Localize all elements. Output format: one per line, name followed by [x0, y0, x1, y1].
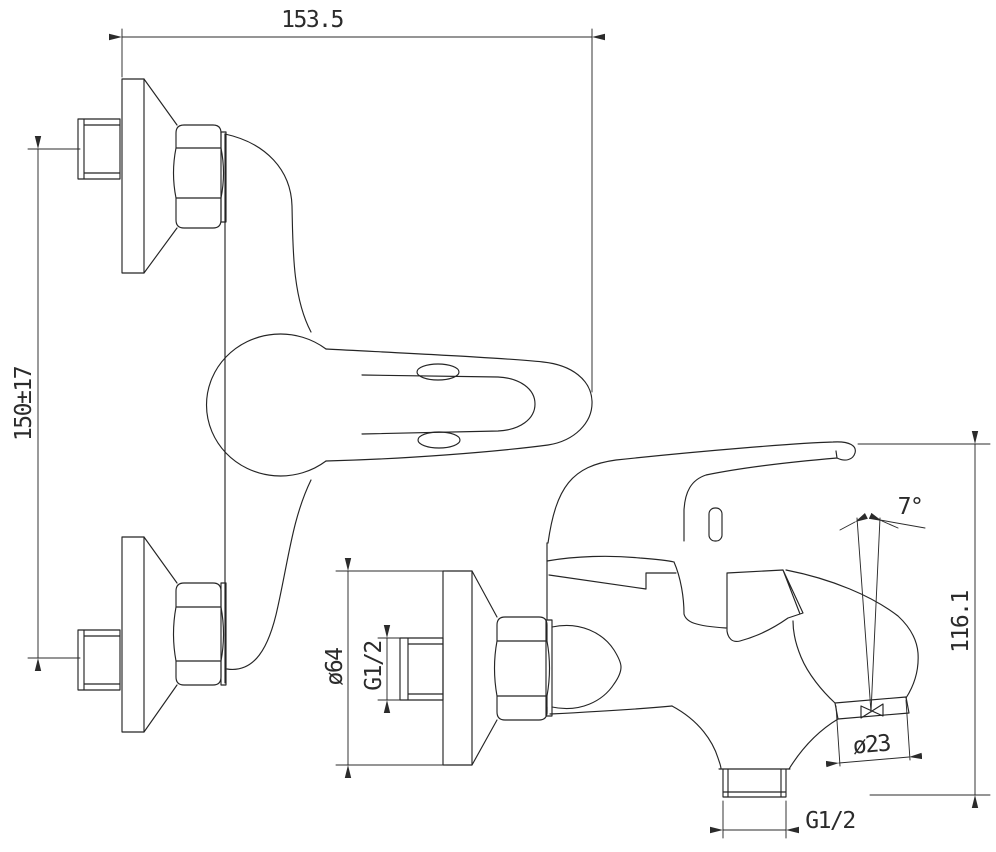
- angle-rays: [857, 518, 880, 712]
- outlet-stub: [719, 769, 790, 797]
- body-right-edge: [674, 562, 726, 628]
- side-view-body: [547, 543, 803, 769]
- spout-outlet-crotch-right: [789, 719, 838, 769]
- escutcheon-plate: [443, 571, 472, 765]
- angle-arrow-left: [840, 522, 855, 530]
- handle-top-edge: [548, 442, 855, 543]
- extension-lines: [336, 571, 446, 765]
- hex-nut: [174, 583, 224, 685]
- side-view-spout: [719, 570, 918, 797]
- indicator-cap: [709, 508, 722, 541]
- lever-grip-highlight-upper: [417, 364, 459, 380]
- top-view-upper-wall-union: [78, 79, 226, 273]
- dim-overall-depth-label: 153.5: [281, 7, 343, 33]
- top-view-lower-wall-union: [78, 537, 226, 732]
- escutcheon-cone: [144, 537, 177, 732]
- body-neck-upper: [225, 134, 311, 332]
- dim-overall-depth: 153.5: [122, 7, 592, 392]
- pipe-stub: [400, 638, 443, 700]
- spout-inner-bend: [793, 621, 835, 703]
- body-neck-lower: [227, 480, 311, 669]
- dim-overall-height-label: 116.1: [948, 590, 974, 652]
- dim-spout-end-diameter-label: ø23: [852, 730, 892, 759]
- faucet-technical-drawing: 153.5 150±17 ø64 G1/2 7°: [0, 0, 996, 852]
- cartridge-rear-lobe: [727, 570, 803, 641]
- dim-inlet-spacing: 150±17: [11, 149, 80, 658]
- dim-outlet-thread-label: G1/2: [805, 808, 854, 834]
- extension-lines: [122, 29, 592, 392]
- dim-inlet-thread-label: G1/2: [361, 641, 387, 690]
- side-view-lever-handle: [548, 442, 855, 543]
- side-view-wall-union: [400, 571, 621, 765]
- top-view: [78, 79, 592, 732]
- escutcheon-cone: [144, 79, 177, 273]
- top-view-body: [207, 134, 326, 683]
- body-bottom-edge: [550, 706, 672, 714]
- lever-grip-highlight-lower: [418, 432, 460, 448]
- lever-outer-outline: [326, 349, 592, 461]
- escutcheon-plate: [122, 537, 144, 732]
- collar-top-line: [547, 556, 674, 562]
- dim-spout-angle-label: 7°: [898, 494, 923, 520]
- dimension-line: [839, 757, 909, 763]
- side-view: [400, 442, 918, 797]
- dim-escutcheon-diameter-label: ø64: [322, 648, 348, 686]
- technical-drawing-canvas: 153.5 150±17 ø64 G1/2 7°: [0, 0, 996, 852]
- hex-nut: [174, 125, 224, 228]
- body-outlet-crotch-left: [672, 706, 721, 769]
- dim-spout-angle: 7°: [840, 494, 925, 712]
- collar-step: [549, 573, 676, 589]
- extension-lines: [723, 801, 786, 838]
- dimension-annotations: 153.5 150±17 ø64 G1/2 7°: [11, 7, 990, 838]
- handle-tip-notch: [836, 451, 837, 458]
- top-view-lever-handle: [326, 349, 592, 461]
- spout-top-edge: [786, 570, 918, 698]
- escutcheon-plate: [122, 79, 144, 273]
- pipe-stub: [78, 119, 120, 179]
- dim-inlet-thread: G1/2: [361, 638, 400, 700]
- escutcheon-cone: [472, 571, 497, 765]
- lever-inner-contour: [362, 375, 535, 434]
- handle-underside: [684, 458, 837, 541]
- dim-outlet-thread: G1/2: [723, 801, 855, 838]
- inlet-dome-cap: [552, 625, 621, 708]
- hex-nut: [495, 617, 550, 720]
- dim-inlet-spacing-label: 150±17: [11, 366, 37, 441]
- pipe-stub: [78, 630, 120, 690]
- leader-line: [880, 520, 925, 528]
